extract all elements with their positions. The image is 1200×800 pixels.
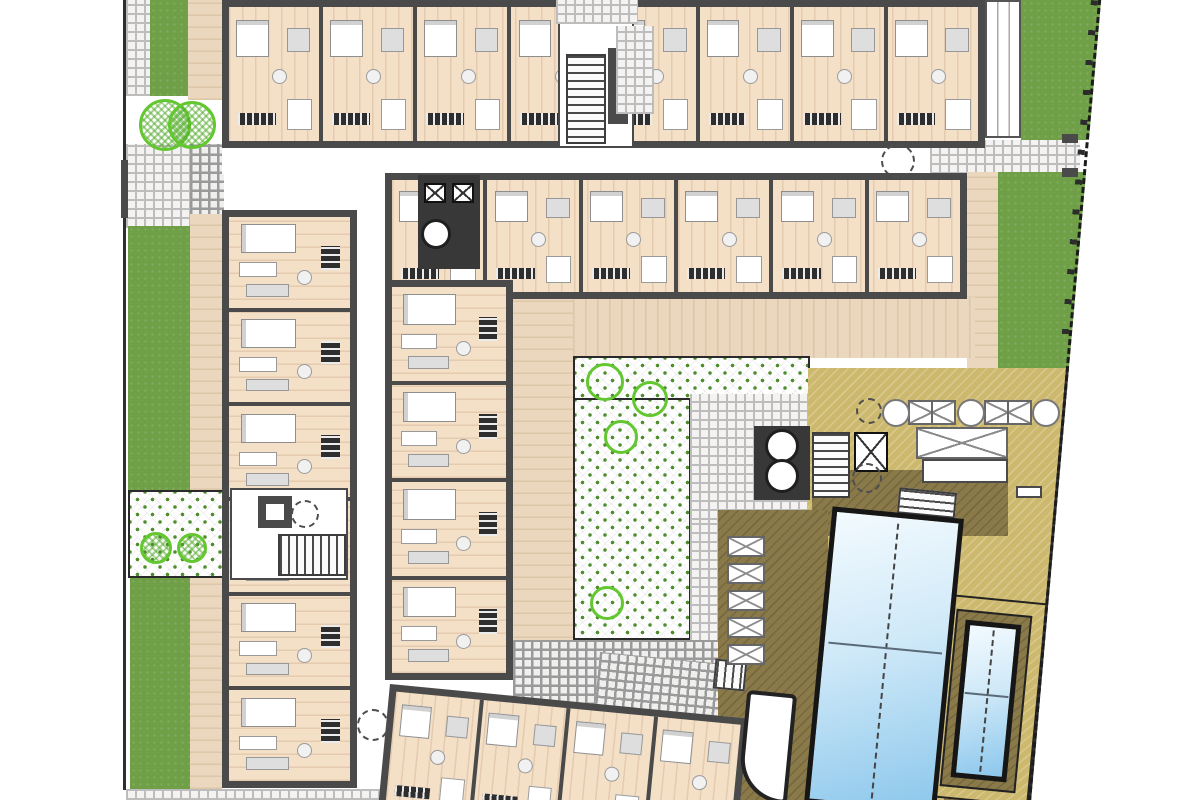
kitchenette (878, 268, 916, 278)
kitchenette (321, 435, 340, 459)
pool-lane-line (979, 630, 995, 772)
bathroom (546, 256, 572, 283)
sunbed-5 (727, 644, 765, 665)
dining-table (430, 749, 446, 765)
apartment-unit (794, 7, 888, 141)
dining-table (366, 69, 381, 84)
tree-canopy (632, 381, 668, 417)
tree-deciduous (852, 463, 882, 493)
kitchenette (803, 113, 841, 125)
apartment-unit (385, 692, 483, 800)
dining-table (817, 232, 832, 247)
bathroom (401, 334, 437, 349)
terrace-west-south (190, 578, 222, 789)
apartment-unit (700, 7, 794, 141)
sunbed-3 (727, 590, 765, 611)
courtyard-terrace-north (513, 297, 975, 358)
dining-table (722, 232, 737, 247)
bathroom (851, 99, 876, 130)
tree-hatched (140, 532, 172, 564)
sofa (475, 28, 499, 51)
bathroom (526, 785, 552, 800)
sofa (246, 284, 289, 297)
kitchenette (782, 268, 820, 278)
sofa (832, 198, 856, 218)
sofa (246, 379, 289, 392)
bathroom (239, 262, 277, 277)
stair-flight-west (278, 534, 346, 576)
bed (241, 319, 296, 348)
apartment-unit (323, 7, 417, 141)
bathroom (641, 256, 667, 283)
apartment-unit (678, 180, 773, 292)
dining-table (604, 766, 620, 782)
lawn-northwest (150, 0, 188, 96)
apartment-unit (487, 180, 582, 292)
sofa (757, 28, 781, 51)
bed (660, 729, 693, 764)
apartment-unit (229, 7, 323, 141)
bathroom (239, 736, 277, 751)
bed (403, 294, 455, 324)
dining-table (461, 69, 476, 84)
sofa (663, 28, 687, 51)
pool-lane-line (871, 523, 899, 798)
tree-deciduous (881, 144, 915, 178)
terrace-northwest (188, 0, 222, 100)
bathroom (613, 794, 639, 800)
sunbed-4 (727, 617, 765, 638)
stair-flight-courtyard (812, 432, 850, 498)
bed (781, 191, 814, 222)
bathroom (401, 529, 437, 544)
kitchenette (479, 414, 497, 438)
sofa (851, 28, 875, 51)
dining-table (517, 758, 533, 774)
elevator-shaft-b (452, 183, 474, 203)
equipment-tank-b (765, 459, 799, 493)
elevator-shaft-a (424, 183, 446, 203)
ramp-northeast (985, 0, 1021, 138)
bathroom (736, 256, 762, 283)
dining-table (531, 232, 546, 247)
kitchenette (479, 609, 497, 633)
dining-table (297, 459, 312, 474)
sunbed-pair-b (984, 400, 1032, 425)
bathroom (927, 256, 953, 283)
tree-canopy (586, 363, 624, 401)
apartment-unit (583, 180, 678, 292)
sofa (246, 473, 289, 486)
sunbed-2 (727, 563, 765, 584)
apartment-unit (417, 7, 511, 141)
bathroom (239, 641, 277, 656)
dining-table (456, 341, 471, 356)
core-drum (421, 219, 451, 249)
apartment-unit (229, 596, 350, 691)
tree-canopy (604, 420, 638, 454)
bed (399, 704, 432, 739)
dining-table (743, 69, 758, 84)
bed (241, 414, 296, 443)
paver-above-north-stair (556, 0, 638, 24)
elevator-west-cab (266, 504, 284, 520)
gate-jamb-east-a (1062, 134, 1078, 143)
bed (685, 191, 718, 222)
sofa (945, 28, 969, 51)
apartment-unit (888, 7, 978, 141)
dining-table (297, 743, 312, 758)
sofa (546, 198, 570, 218)
stair-flight-north (566, 54, 606, 144)
apartment-unit (229, 690, 350, 781)
sunbed-pair-a (908, 400, 956, 425)
kitchenette (482, 794, 518, 800)
deck-table-b (957, 399, 985, 427)
kitchenette (709, 113, 747, 125)
kitchenette (687, 268, 725, 278)
apartment-unit (229, 312, 350, 407)
courtyard-terrace-west (513, 297, 573, 662)
bathroom (381, 99, 406, 130)
kitchenette (321, 625, 340, 649)
kitchenette (520, 113, 558, 125)
bed (236, 20, 269, 57)
bed (519, 20, 552, 57)
apartment-unit (392, 287, 506, 385)
deck-box (1016, 486, 1042, 498)
apartment-unit (472, 700, 570, 800)
dining-table (456, 536, 471, 551)
bathroom (475, 99, 500, 130)
bed (801, 20, 834, 57)
sofa (246, 663, 289, 676)
sofa (445, 716, 469, 739)
gate-jamb-west (121, 160, 128, 218)
apartment-unit (392, 385, 506, 483)
wing-inner (385, 280, 513, 680)
bed (330, 20, 363, 57)
sofa (408, 454, 449, 467)
apartment-unit (229, 217, 350, 312)
kitchenette (332, 113, 370, 125)
sofa (408, 356, 449, 369)
dining-table (837, 69, 852, 84)
apartment-unit (869, 180, 960, 292)
planting-west (128, 490, 230, 578)
bed (590, 191, 623, 222)
bathroom (439, 777, 465, 800)
kitchenette (395, 785, 431, 799)
bathroom (663, 99, 688, 130)
bed (707, 20, 740, 57)
sofa (707, 741, 731, 764)
apartment-unit (392, 580, 506, 674)
tree-deciduous (856, 398, 882, 424)
sofa (620, 732, 644, 755)
left-boundary-wall (123, 0, 126, 790)
dining-table (297, 364, 312, 379)
bed (895, 20, 928, 57)
apartment-unit (773, 180, 868, 292)
deck-table-c (1032, 399, 1060, 427)
tree-deciduous (291, 500, 319, 528)
terrace-west-mid (190, 214, 222, 490)
equipment-tank-a (765, 429, 799, 463)
pool-deck-room (922, 459, 1008, 483)
pool-main (804, 506, 964, 800)
bathroom (757, 99, 782, 130)
dining-table (272, 69, 287, 84)
sofa (927, 198, 951, 218)
kitchenette (426, 113, 464, 125)
bed (876, 191, 909, 222)
kitchenette (321, 719, 340, 743)
dining-table (297, 648, 312, 663)
bed (486, 712, 519, 747)
kitchenette (496, 268, 534, 278)
dining-table (456, 634, 471, 649)
sofa (381, 28, 405, 51)
kitchenette (238, 113, 276, 125)
pergola (916, 427, 1008, 459)
lawn-west-mid (128, 226, 190, 490)
sofa (641, 198, 665, 218)
kitchenette (321, 341, 340, 365)
apartment-unit (559, 708, 657, 800)
floor-plan (0, 0, 1200, 800)
deck-table-a (882, 399, 910, 427)
bed (573, 721, 606, 756)
bed (403, 587, 455, 617)
apartment-unit (229, 406, 350, 501)
sofa (287, 28, 311, 51)
dining-table (297, 270, 312, 285)
tree-deciduous (357, 709, 389, 741)
sofa (246, 757, 289, 770)
bathroom (239, 357, 277, 372)
apartment-unit (392, 482, 506, 580)
paver-east-of-north-stair (616, 26, 654, 114)
sofa (532, 724, 556, 747)
bathroom (401, 626, 437, 641)
kitchenette (897, 113, 935, 125)
corridor-north (222, 148, 930, 174)
dining-table (931, 69, 946, 84)
tree-canopy (590, 586, 624, 620)
bed (424, 20, 457, 57)
bed (241, 224, 296, 253)
sofa (408, 649, 449, 662)
bathroom (239, 452, 277, 467)
bed (403, 392, 455, 422)
bed (241, 698, 296, 727)
kitchenette (401, 268, 439, 278)
dining-table (456, 439, 471, 454)
sofa (408, 551, 449, 564)
bathroom (832, 256, 858, 283)
bathroom (401, 431, 437, 446)
kitchenette (592, 268, 630, 278)
sunbed-1 (727, 536, 765, 557)
dining-table (912, 232, 927, 247)
dining-table (691, 775, 707, 791)
tree-hatched (177, 533, 207, 563)
side-path-northwest (126, 0, 150, 96)
lawn-west-south (130, 578, 190, 789)
bathroom (287, 99, 312, 130)
kitchenette (321, 246, 340, 270)
kitchenette (479, 512, 497, 536)
sofa (736, 198, 760, 218)
tree-hatched (168, 101, 216, 149)
bed (241, 603, 296, 632)
kitchenette (479, 317, 497, 341)
bed (403, 489, 455, 519)
entry-paver-west (126, 144, 190, 228)
apartment-unit (646, 717, 740, 800)
bathroom (945, 99, 970, 130)
bed (495, 191, 528, 222)
dining-table (626, 232, 641, 247)
